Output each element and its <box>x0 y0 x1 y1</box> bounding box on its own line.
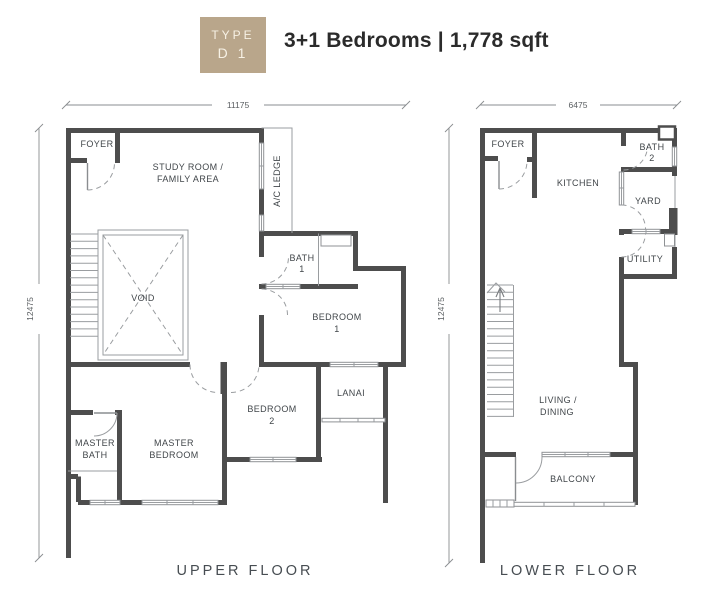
balcony-railing <box>514 502 635 506</box>
room-label-foyer-upper: FOYER <box>80 139 113 149</box>
lower-walls <box>480 127 678 564</box>
upper-width-dimension: 11175 <box>227 100 250 110</box>
lower-floor-plan: 6475 12475 <box>436 100 681 579</box>
room-label-master-bath-line2: BATH <box>83 450 108 460</box>
stair-direction-arrow <box>487 283 505 312</box>
master-bedroom-window <box>142 500 218 504</box>
room-label-bath2-line1: BATH <box>640 142 665 152</box>
foyer-door-lower <box>499 161 527 189</box>
study-window-1 <box>259 143 263 189</box>
floorplan-drawing: 11175 12475 <box>0 0 716 600</box>
lanai-railing <box>322 418 385 422</box>
room-label-kitchen: KITCHEN <box>557 178 599 188</box>
study-window-2 <box>259 215 263 231</box>
floorplan-page: TYPE D 1 3+1 Bedrooms | 1,778 sqft 11175… <box>0 0 716 600</box>
room-label-balcony: BALCONY <box>550 474 596 484</box>
bedroom2-door <box>231 365 259 393</box>
master-bedroom-door <box>190 365 218 393</box>
room-label-bath1-line1: BATH <box>290 253 315 263</box>
room-label-master-bedroom-line2: BEDROOM <box>149 450 198 460</box>
upper-walls <box>66 128 406 558</box>
bath1-fixtures <box>319 234 352 287</box>
master-bath-bottom-window <box>90 500 120 504</box>
room-label-bedroom1-line1: BEDROOM <box>312 312 361 322</box>
room-label-bath2-line2: 2 <box>649 153 654 163</box>
yard-door <box>622 205 646 229</box>
utility-washer <box>665 234 675 246</box>
upper-height-dimension: 12475 <box>25 297 35 321</box>
room-label-bedroom2-line2: 2 <box>269 416 274 426</box>
room-label-yard: YARD <box>635 196 661 206</box>
room-label-master-bedroom-line1: MASTER <box>154 438 194 448</box>
lower-doors <box>499 146 648 501</box>
lanai-window <box>330 362 378 366</box>
upper-floor-title: UPPER FLOOR <box>177 563 314 579</box>
room-label-study-line1: STUDY ROOM / <box>153 162 224 172</box>
bath1-door <box>262 257 289 284</box>
room-label-foyer-lower: FOYER <box>491 139 524 149</box>
lower-room-labels: FOYER KITCHEN BATH 2 YARD UTILITY LIVING… <box>491 139 664 484</box>
room-label-bedroom1-line2: 1 <box>334 324 339 334</box>
upper-stairs <box>70 234 98 336</box>
master-bath-door <box>94 413 117 436</box>
balcony-door <box>516 457 543 501</box>
room-label-ac-ledge: A/C LEDGE <box>272 155 282 207</box>
room-label-master-bath-line1: MASTER <box>75 438 115 448</box>
bath1-window <box>266 284 300 288</box>
lower-stairs <box>487 283 514 417</box>
lower-width-dimension: 6475 <box>569 100 588 110</box>
room-label-bedroom2-line1: BEDROOM <box>247 404 296 414</box>
bath2-window <box>672 147 676 166</box>
room-label-lanai: LANAI <box>337 388 365 398</box>
living-balcony-window <box>542 452 610 456</box>
upper-floor-plan: 11175 12475 <box>25 100 410 579</box>
yard-window <box>619 172 623 205</box>
room-label-study-line2: FAMILY AREA <box>157 174 219 184</box>
room-label-living-line2: DINING <box>540 407 574 417</box>
lower-height-dimension: 12475 <box>436 297 446 321</box>
room-label-living-line1: LIVING / <box>539 395 577 405</box>
bedroom1-door <box>262 289 288 315</box>
room-label-bath1-line2: 1 <box>299 264 304 274</box>
room-label-utility: UTILITY <box>627 254 663 264</box>
room-label-void: VOID <box>131 293 155 303</box>
lower-floor-title: LOWER FLOOR <box>500 563 640 579</box>
balcony-planter <box>486 500 514 507</box>
bedroom2-window <box>250 457 296 461</box>
bath2-duct-box <box>659 127 675 140</box>
foyer-door-upper <box>88 163 115 190</box>
yard-service-block <box>669 208 678 235</box>
